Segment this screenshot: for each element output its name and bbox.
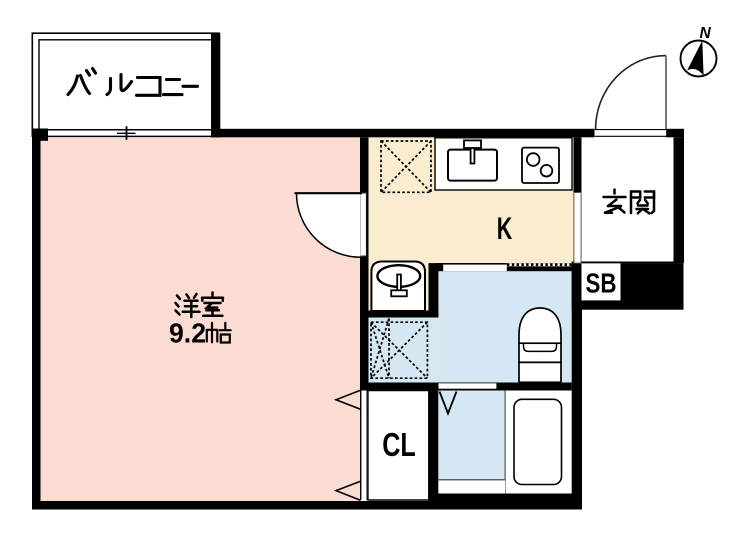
svg-text:CL: CL [382, 426, 416, 463]
svg-text:9.2: 9.2 [169, 318, 206, 349]
svg-text:K: K [497, 210, 513, 246]
svg-text:SB: SB [586, 268, 617, 299]
svg-text:N: N [700, 25, 712, 42]
